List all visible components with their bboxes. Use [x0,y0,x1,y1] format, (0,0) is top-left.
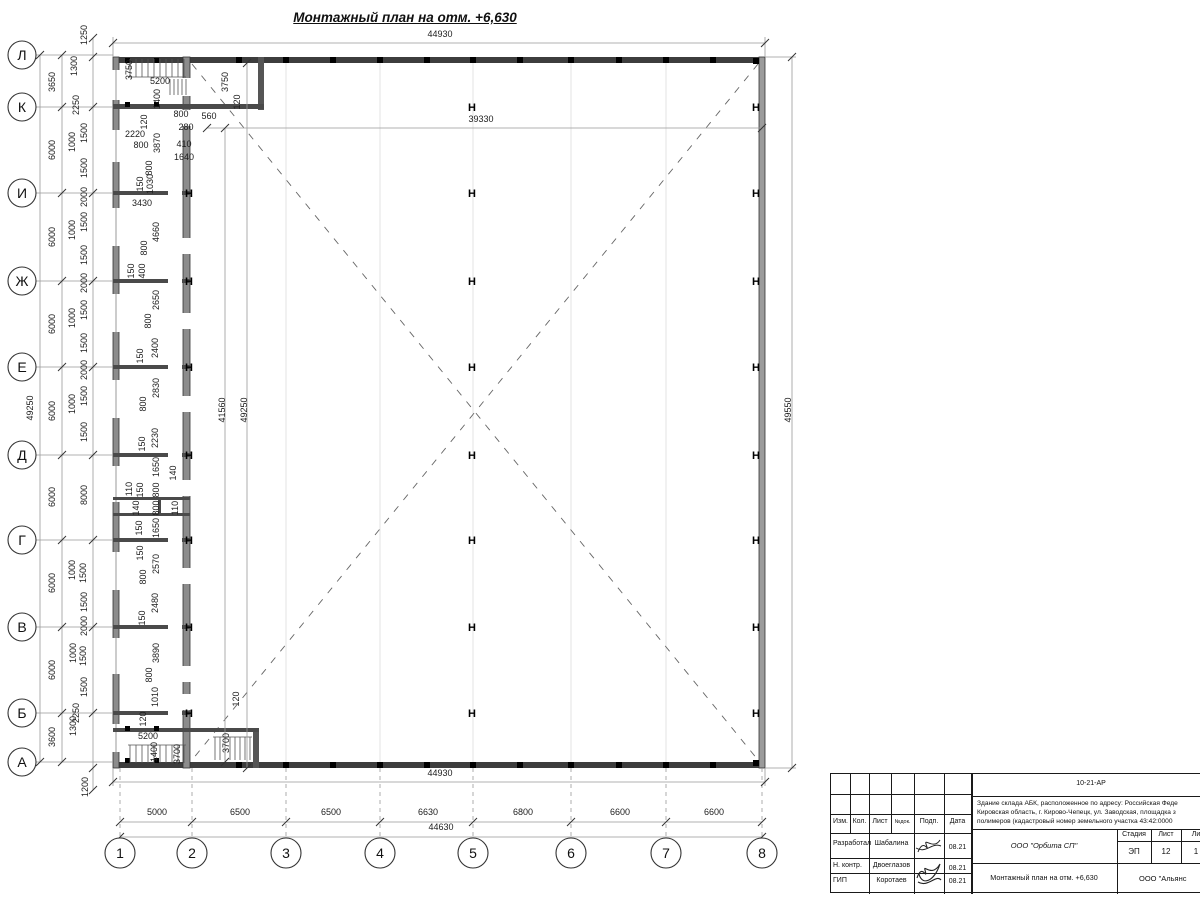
dimension-label: 1000 [67,560,77,580]
dimension-label: 120 [232,94,242,109]
dimension-label: 150 [134,520,144,535]
dimension-label: 1650 [151,457,161,477]
dimension-label: 800 [173,109,188,119]
dimension-label: 1640 [174,152,194,162]
dimension-label: 1500 [79,212,89,232]
dimension-label: 1000 [67,220,77,240]
dimension-label: 44630 [428,822,453,832]
walls-layer [112,57,765,768]
dimension-label: 3700 [221,733,231,753]
dimension-label: 110 [124,482,134,496]
column-mark: Н [752,362,760,374]
dimension-label: 49250 [239,397,249,422]
col-axis-label: 3 [282,845,290,861]
tb-line [831,814,971,815]
dimension-label: 800 [151,500,161,515]
row-axis-label: Ж [16,273,29,289]
dimension-label: 1650 [151,518,161,538]
tb-role: Разработал [833,840,871,847]
column-mark: Н [752,276,760,288]
drawing-sheet: { "title": "Монтажный план на отм. +6,63… [0,0,1200,900]
dimension-label: 2000 [79,187,89,207]
column-mark: Н [185,535,193,547]
signature [914,834,944,892]
column-mark: Н [468,102,476,114]
column-mark: Н [468,362,476,374]
row-axis-label: Е [17,359,26,375]
column-mark: Н [185,362,193,374]
dimension-label: 2480 [150,593,160,613]
dimension-label: 1500 [79,592,89,612]
dimension-label: 1300 [69,56,79,76]
tb-firm: ООО "Альянс [1139,874,1187,883]
col-axis-label: 4 [376,845,384,861]
column-mark: Н [752,535,760,547]
dimension-label: 1400 [152,89,162,109]
dimension-label: 800 [151,482,161,497]
column-mark: Н [468,188,476,200]
dimension-label: 150 [135,482,145,497]
dimension-label: 1500 [79,245,89,265]
tb-col-kol: Кол. [850,818,869,825]
tb-name: Коротаев [869,877,914,884]
dimension-label: 2000 [79,273,89,293]
dimension-label: 2570 [151,554,161,574]
tb-date: 08.21 [944,878,971,885]
dimension-label: 2250 [71,95,81,115]
dimension-label: 44930 [427,768,452,778]
dimension-label: 1500 [78,646,88,666]
dimension-label: 6000 [47,660,57,680]
tb-sheets-value: 1 [1181,847,1200,856]
dimension-label: 1500 [79,300,89,320]
column-mark: Н [752,102,760,114]
grid-lines [286,63,666,762]
dimension-label: 6000 [47,487,57,507]
column-mark: Н [185,188,193,200]
dimension-label: 3890 [151,643,161,663]
dimension-label: 150 [137,436,147,451]
column-mark: Н [468,450,476,462]
dimension-label: 800 [144,160,154,175]
tb-line [1117,829,1118,894]
dimension-label: 110 [170,501,180,515]
column-mark: Н [752,450,760,462]
row-axis-label: Г [18,532,26,548]
dimension-label: 2220 [125,129,145,139]
tb-col-izm: Изм. [831,818,850,825]
dimension-label: 6600 [610,807,630,817]
dimension-label: 1500 [79,158,89,178]
dimension-label: 1000 [67,394,77,414]
dimension-label: 2830 [151,378,161,398]
dimension-label: 800 [139,240,149,255]
dimension-label: 1400 [149,742,159,762]
dimension-label: 1500 [79,123,89,143]
tb-line [831,794,971,795]
column-mark: Н [185,450,193,462]
dimension-label: 3600 [47,727,57,747]
tb-name: Шабалина [869,840,914,847]
tb-name: Двоеглазов [869,862,914,869]
dimension-label: 150 [135,176,145,191]
row-axis-label: В [17,619,26,635]
diagonal-braces [192,64,758,760]
tb-line [831,833,971,834]
row-axis-label: Л [17,47,26,63]
tb-line [831,858,971,859]
dimension-label: 3700 [172,744,182,764]
dimension-label: 1500 [79,677,89,697]
dimension-label: 410 [176,139,191,149]
generated-labels: 4493039330560375052001400120800280222080… [8,25,793,868]
column-mark: Н [468,276,476,288]
dimension-label: 1010 [150,687,160,707]
tb-col-data: Дата [944,818,971,825]
tb-desc-line3: полимеров (кадастровый номер земельного … [977,818,1173,825]
dimension-label: 800 [133,140,148,150]
dimension-label: 1030 [145,174,155,194]
col-axis-label: 5 [469,845,477,861]
dimension-label: 120 [138,711,148,726]
dimension-label: 5000 [147,807,167,817]
dimension-label: 3430 [132,198,152,208]
col-axis-label: 6 [567,845,575,861]
dimension-label: 560 [201,111,216,121]
tb-desc-line1: Здание склада АБК, расположенное по адре… [977,800,1178,807]
tb-line [971,796,1200,797]
dimension-label: 1000 [67,132,77,152]
dimension-label: 6630 [418,807,438,817]
column-mark: Н [185,708,193,720]
tb-sheet-label: Лист [1151,831,1181,838]
tb-organization: ООО "Орбита СП" [971,841,1117,850]
dimension-label: 6000 [47,401,57,421]
tb-role: ГИП [833,877,847,884]
dimension-label: 120 [139,114,149,129]
col-axis-label: 2 [188,845,196,861]
column-mark: Н [185,622,193,634]
row-axis-label: К [18,99,27,115]
tb-col-ndok: №док. [891,819,914,825]
tb-line [1117,841,1200,842]
title-block: Изм. Кол. Лист №док. Подп. Дата Разработ… [830,773,1200,893]
dimension-label: 150 [135,348,145,363]
tb-line [869,774,870,894]
tb-line [971,863,1200,864]
dimension-label: 150 [126,263,136,278]
dimension-label: 800 [143,313,153,328]
dimension-label: 3870 [152,133,162,153]
dimension-label: 6000 [47,314,57,334]
column-mark: Н [752,188,760,200]
tb-line [831,873,971,874]
dimension-label: 1300 [68,716,78,736]
dimension-label: 3650 [47,72,57,92]
row-axis-label: Д [17,447,27,463]
tb-sheets-label: Ли [1181,831,1200,838]
dimension-label: 6000 [47,227,57,247]
dimension-label: 6800 [513,807,533,817]
dimension-label: 3750 [220,72,230,92]
tb-sheet-value: 12 [1151,847,1181,856]
dimension-label: 800 [138,396,148,411]
dimension-label: 120 [231,691,241,706]
column-mark: Н [752,708,760,720]
dimension-label: 1000 [68,643,78,663]
dimension-label: 6500 [321,807,341,817]
column-mark: Н [185,276,193,288]
dimension-label: 49550 [783,397,793,422]
dimension-label: 800 [144,667,154,682]
dimension-label: 3750 [124,60,134,80]
dimension-label: 6500 [230,807,250,817]
dimension-label: 5200 [150,76,170,86]
tb-doc-title: Монтажный план на отм. +6,630 [971,873,1117,882]
row-axis-label: И [17,185,27,201]
dimension-label: 140 [131,500,141,515]
dimension-label: 41560 [217,397,227,422]
dimension-label: 49250 [25,395,35,420]
dimension-label: 2000 [79,360,89,380]
tb-role: Н. контр. [833,862,862,869]
dimension-label: 6000 [47,573,57,593]
dimension-label: 150 [135,545,145,560]
dimension-label: 400 [137,263,147,278]
tb-desc-line2: Кировская область, г. Кирово-Чепецк, ул.… [977,809,1176,816]
tb-col-podp: Подп. [914,818,944,825]
dimension-label: 1500 [79,422,89,442]
column-mark: Н [468,708,476,720]
dimension-label: 4660 [151,222,161,242]
dimension-label: 1200 [80,777,90,797]
dimension-label: 5200 [138,731,158,741]
column-mark: Н [468,535,476,547]
floor-plan-drawing: 4493039330560375052001400120800280222080… [0,0,1200,900]
tb-stage-value: ЭП [1117,847,1151,856]
dimension-label: 2000 [79,616,89,636]
col-axis-label: 8 [758,845,766,861]
dimension-label: 1500 [79,386,89,406]
dimension-label: 1500 [79,333,89,353]
dimension-label: 44930 [427,29,452,39]
dimension-label: 2230 [150,428,160,448]
dimension-label: 2650 [151,290,161,310]
dimension-label: 1500 [78,563,88,583]
dimension-label: 800 [138,569,148,584]
tb-stage-label: Стадия [1117,831,1151,838]
dimension-label: 39330 [468,114,493,124]
tb-date: 08.21 [944,844,971,851]
row-axis-label: А [17,754,27,770]
dimension-label: 280 [178,122,193,132]
dimension-label: 1000 [67,308,77,328]
dimension-label: 1250 [79,25,89,45]
tb-date: 08.21 [944,865,971,872]
col-axis-label: 7 [662,845,670,861]
dimension-label: 8000 [79,485,89,505]
tb-line [944,774,945,894]
dimension-label: 6000 [47,140,57,160]
column-mark: Н [468,622,476,634]
row-axis-label: Б [17,705,26,721]
column-mark: Н [752,622,760,634]
tb-doc-code: 10-21-АР [971,780,1200,787]
tb-col-list: Лист [869,818,891,825]
dimension-label: 6600 [704,807,724,817]
dimension-label: 2400 [150,338,160,358]
dimension-label: 150 [137,610,147,625]
dimension-label: 140 [168,465,178,480]
col-axis-label: 1 [116,845,124,861]
